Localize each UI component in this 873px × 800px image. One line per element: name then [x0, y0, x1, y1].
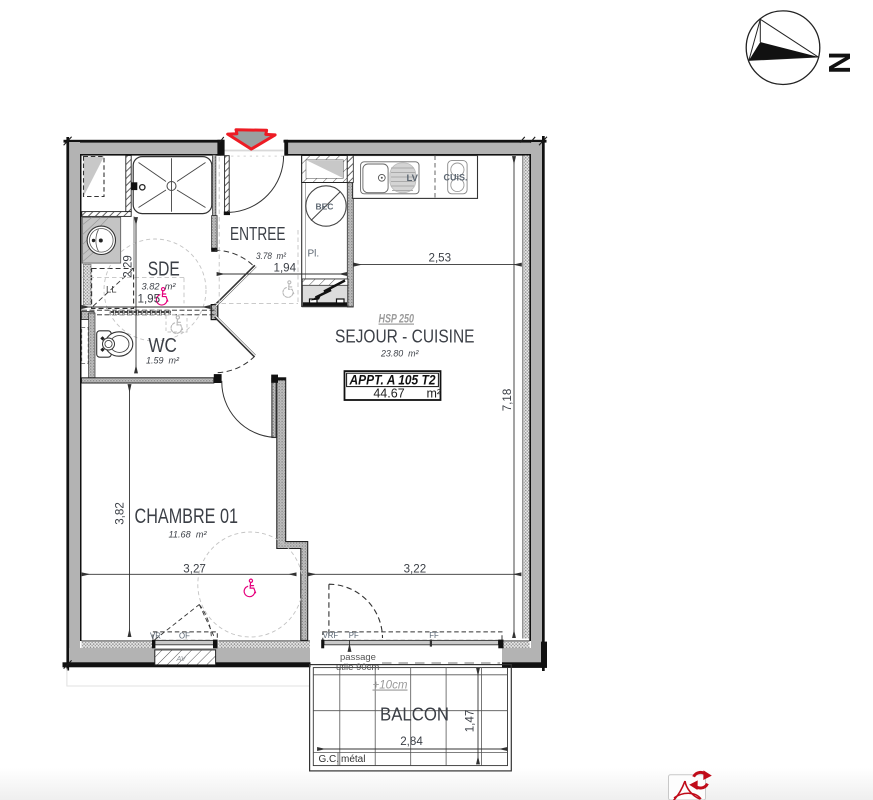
svg-text:m²: m² — [427, 387, 442, 401]
svg-text:AV: AV — [176, 654, 187, 663]
svg-text:APPT. A 105 T2: APPT. A 105 T2 — [349, 372, 436, 387]
svg-text:FF: FF — [429, 631, 439, 640]
svg-text:SEJOUR - CUISINE: SEJOUR - CUISINE — [335, 325, 475, 346]
svg-text:PF: PF — [349, 631, 359, 640]
svg-text:utile 90cm: utile 90cm — [336, 662, 379, 673]
svg-text:1,94: 1,94 — [274, 261, 297, 274]
svg-text:1,47: 1,47 — [464, 710, 477, 733]
svg-text:VRF: VRF — [323, 631, 339, 640]
svg-text:WC: WC — [148, 334, 177, 357]
svg-text:3,27: 3,27 — [183, 562, 206, 575]
svg-text:3.82 m²: 3.82 m² — [142, 282, 177, 292]
svg-text:BEC: BEC — [316, 202, 334, 212]
svg-text:3.78 m²: 3.78 m² — [256, 251, 287, 261]
svg-text:23.80 m²: 23.80 m² — [380, 349, 419, 360]
svg-text:2,29: 2,29 — [121, 255, 134, 278]
svg-text:1,95: 1,95 — [138, 292, 161, 305]
svg-text:CUiS.: CUiS. — [444, 173, 468, 183]
svg-text:LV: LV — [407, 173, 419, 184]
svg-text:LL: LL — [106, 285, 117, 296]
svg-text:VR: VR — [150, 631, 161, 640]
svg-text:1.59 m²: 1.59 m² — [146, 356, 180, 366]
svg-text:CHAMBRE 01: CHAMBRE 01 — [135, 505, 239, 528]
svg-text:SDE: SDE — [148, 258, 180, 280]
svg-text:3,22: 3,22 — [404, 562, 427, 575]
svg-text:+10cm: +10cm — [373, 680, 408, 692]
svg-text:Pl.: Pl. — [308, 249, 320, 260]
svg-text:44.67: 44.67 — [373, 387, 404, 401]
svg-text:2,84: 2,84 — [400, 735, 423, 748]
svg-text:2,53: 2,53 — [429, 251, 452, 264]
svg-text:BALCON: BALCON — [380, 705, 449, 725]
svg-text:N: N — [822, 52, 857, 74]
svg-text:G.C.: G.C. — [319, 754, 340, 765]
svg-text:7,18: 7,18 — [501, 389, 514, 412]
svg-text:HSP 250: HSP 250 — [379, 312, 415, 326]
svg-text:3,82: 3,82 — [113, 502, 126, 525]
svg-text:OF: OF — [179, 631, 190, 640]
svg-text:11.68 m²: 11.68 m² — [169, 530, 208, 540]
svg-text:ENTREE: ENTREE — [230, 223, 286, 244]
svg-text:métal: métal — [341, 754, 365, 765]
